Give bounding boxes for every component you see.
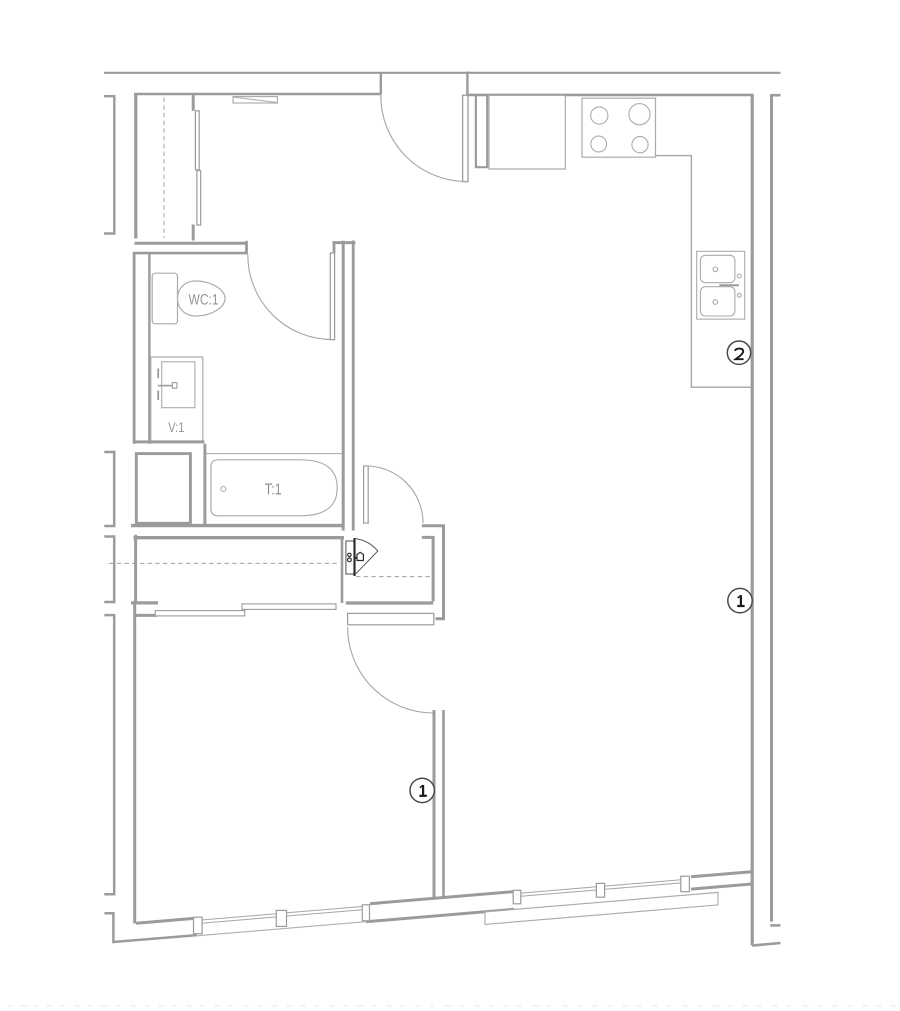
svg-text:WC:1: WC:1	[189, 292, 219, 309]
svg-text:T:1: T:1	[265, 481, 282, 498]
svg-text:V:1: V:1	[168, 419, 185, 435]
